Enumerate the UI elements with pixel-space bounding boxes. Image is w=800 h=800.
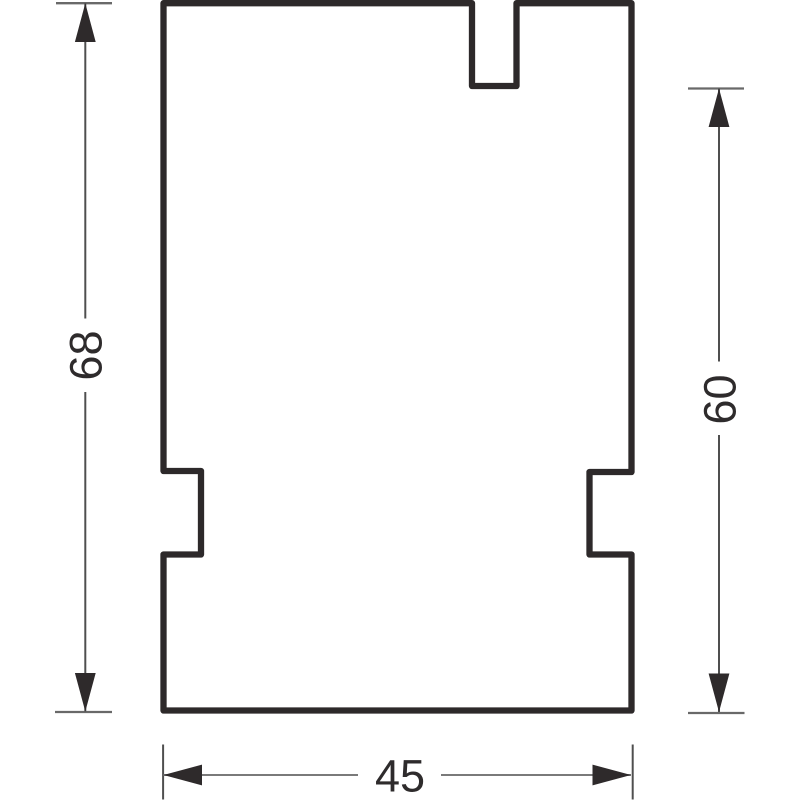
svg-text:68: 68 [61,330,112,380]
svg-text:45: 45 [375,751,425,800]
svg-text:60: 60 [694,374,745,424]
